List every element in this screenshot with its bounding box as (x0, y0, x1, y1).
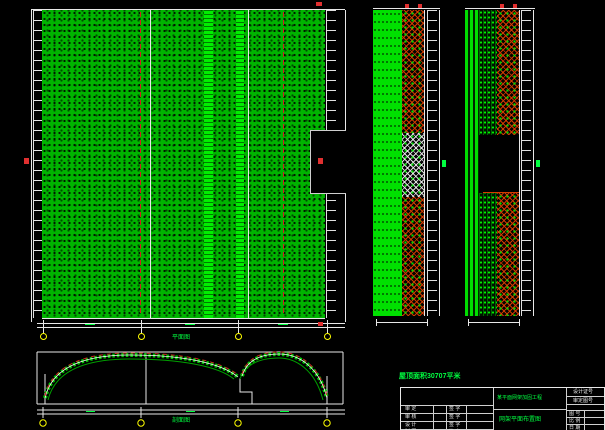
right-strip-bottom-dim (468, 322, 520, 323)
tb-right-row-label: 比 例 (569, 418, 580, 424)
right-strip-lattice-lower (497, 193, 519, 316)
mid-strip-top-edge (373, 8, 440, 9)
mid-strip-lattice-upper (402, 10, 424, 133)
right-strip-dim-tick-r (519, 319, 520, 326)
plan-dim-tick-d (327, 320, 328, 333)
tb-role-label: 审 定 (405, 406, 416, 412)
right-strip-dim-tick-l (468, 319, 469, 326)
tb-role-label: 设 计 (405, 422, 416, 428)
tb-divider (446, 405, 447, 430)
grid-bubble (235, 420, 241, 426)
grid-bubble (138, 420, 144, 426)
plan-axis-red-line-2 (283, 12, 284, 316)
tb-row-line (493, 409, 566, 410)
plan-dim-tick-a (43, 320, 44, 333)
grid-bubble (138, 333, 145, 340)
plan-outer-left-line (31, 10, 32, 322)
left-axis-marker (24, 158, 29, 164)
section-valley-step (240, 378, 252, 404)
small-arch-top-chord (242, 354, 327, 398)
section-dim-value-mark (186, 411, 195, 412)
big-arch-bottom-chord (48, 359, 234, 400)
mid-strip-lattice-lower (402, 197, 424, 316)
mid-strip-lattice-middle (402, 133, 424, 197)
roof-area-note: 屋顶面积30707平米 (399, 371, 460, 381)
plan-truss-column-1 (204, 10, 213, 318)
mid-strip-bottom-dim (376, 322, 428, 323)
tb-divider (584, 410, 585, 430)
notch-axis-marker (318, 158, 323, 164)
right-strip-level-marker (536, 160, 540, 167)
right-strip-edge-line (519, 10, 520, 316)
plan-bay-divider-1 (150, 10, 151, 318)
mid-strip-edge-line (424, 10, 425, 316)
tb-row-line (566, 396, 604, 397)
plan-top-edge (31, 9, 345, 10)
mid-strip-outer-line (439, 10, 440, 316)
big-arch-truss-web (45, 355, 238, 398)
drawing-name: 网架平面布置图 (499, 417, 541, 423)
tb-sign-label: 签 字 (449, 414, 460, 420)
plan-bay-divider-2 (248, 10, 249, 318)
top-right-axis-marker (316, 2, 322, 6)
tb-right-row-label: 日 期 (569, 425, 580, 430)
plan-truss-column-2 (236, 10, 244, 318)
tb-sign-label: 签 字 (449, 422, 460, 428)
grid-bubble (235, 333, 242, 340)
tb-sign-label: 签 字 (449, 406, 460, 412)
section-dim-value-mark (280, 411, 289, 412)
mid-strip-dim-tick-l (376, 319, 377, 326)
plan-bottom-edge (42, 318, 325, 319)
small-arch-truss-web (242, 354, 327, 398)
right-strip-red-tick-1 (500, 4, 504, 8)
right-strip-outer-line (533, 10, 534, 316)
approval-label: 审定图号 (573, 398, 593, 404)
mid-strip-level-marker (442, 160, 446, 167)
cad-drawing-canvas: 平面图 (0, 0, 605, 430)
mid-strip-panel (373, 10, 402, 316)
plan-view-label: 平面图 (172, 335, 190, 342)
mid-strip-dim-tick-r (427, 319, 428, 326)
right-strip-panel (465, 10, 479, 316)
section-dim-value-mark (86, 411, 95, 412)
mid-strip-red-tick-2 (418, 4, 422, 8)
tb-row-line (566, 404, 604, 405)
right-strip-top-edge (465, 8, 535, 9)
tb-divider (466, 405, 467, 430)
plan-dim-line-2 (37, 327, 345, 328)
right-strip-lattice-upper (497, 10, 519, 135)
tb-divider (433, 405, 434, 430)
project-name: 某平面网架加固工程 (497, 395, 542, 401)
plan-dim-value-mark-2 (185, 324, 195, 325)
tb-role-label: 审 核 (405, 414, 416, 420)
plan-dim-tick-c (238, 320, 239, 333)
tb-right-row-label: 图 号 (569, 411, 580, 417)
grid-bubble (324, 420, 330, 426)
plan-dim-value-mark-1 (85, 324, 95, 325)
plan-notch-opening (310, 130, 346, 194)
mid-strip-dimension-ladder (427, 10, 437, 316)
plan-dim-value-mark-3 (278, 324, 288, 325)
right-strip-red-tick-2 (513, 4, 517, 8)
plan-axis-red-line-1 (140, 12, 141, 316)
right-strip-notch-opening (479, 135, 519, 193)
grid-bubble (324, 333, 331, 340)
cert-label: 设计证号 (573, 389, 593, 395)
bottom-right-axis-marker (318, 322, 323, 326)
grid-bubble (40, 420, 46, 426)
section-view-label: 剖面图 (172, 418, 190, 425)
grid-bubble (40, 333, 47, 340)
mid-strip-red-tick-1 (405, 4, 409, 8)
right-strip-dimension-ladder (521, 10, 531, 316)
title-block: 某平面网架加固工程 网架平面布置图 设计证号 审定图号 图 号 比 例 日 期 … (400, 387, 605, 430)
plan-dim-tick-b (141, 320, 142, 333)
